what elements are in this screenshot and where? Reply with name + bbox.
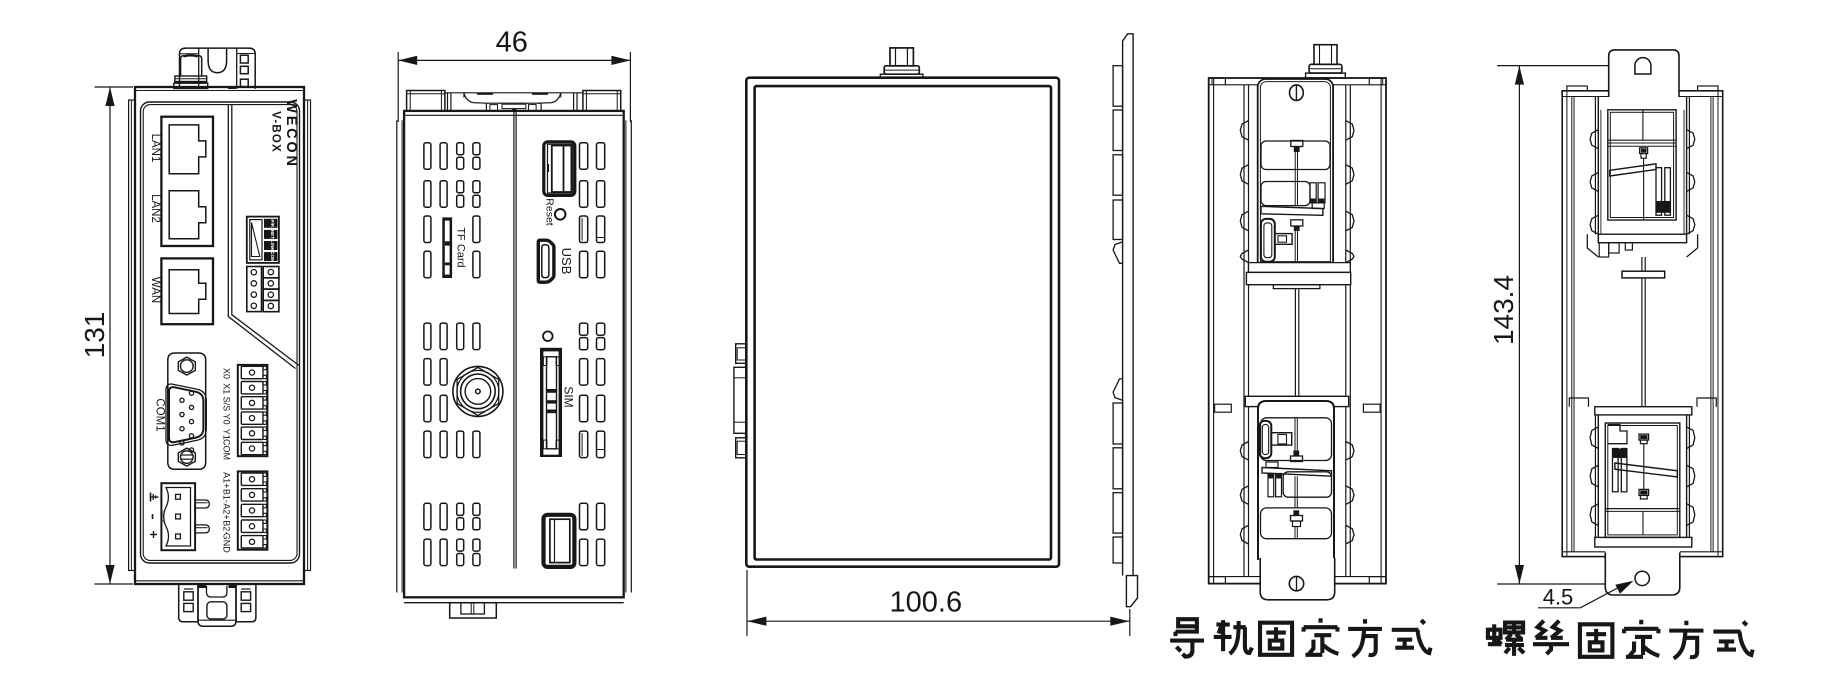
svg-text:COM1: COM1 <box>154 398 166 431</box>
svg-text:A2+: A2+ <box>222 503 232 519</box>
svg-text:SIM: SIM <box>562 386 576 407</box>
svg-text:TF Card: TF Card <box>455 227 467 267</box>
svg-text:S/S: S/S <box>222 397 232 412</box>
svg-text:WECON: WECON <box>283 99 299 169</box>
svg-text:24VDC: 24VDC <box>161 510 166 525</box>
svg-text:100.6: 100.6 <box>890 587 963 619</box>
svg-text:Reset: Reset <box>544 198 556 226</box>
svg-text:LINK: LINK <box>270 240 275 251</box>
svg-text:4.5: 4.5 <box>1543 585 1574 610</box>
svg-text:COM: COM <box>270 251 275 262</box>
svg-text:Y0: Y0 <box>222 414 232 425</box>
svg-text:NET: NET <box>270 230 275 239</box>
svg-text:131: 131 <box>79 312 110 359</box>
svg-text:B1-: B1- <box>222 489 232 503</box>
svg-text:WAN: WAN <box>149 277 161 303</box>
svg-text:USB: USB <box>559 248 574 275</box>
svg-text:GND: GND <box>222 533 232 554</box>
svg-text:V-BOX: V-BOX <box>270 111 282 153</box>
svg-text:143.4: 143.4 <box>1488 275 1519 345</box>
svg-text:P/R: P/R <box>270 219 275 227</box>
svg-text:X0: X0 <box>222 368 232 379</box>
svg-text:LAN2: LAN2 <box>149 194 161 223</box>
svg-text:46: 46 <box>496 27 528 59</box>
svg-text:COM: COM <box>222 439 232 460</box>
svg-text:A1+: A1+ <box>222 472 232 488</box>
svg-text:LAN1: LAN1 <box>149 134 161 163</box>
svg-text:X1: X1 <box>222 383 232 394</box>
